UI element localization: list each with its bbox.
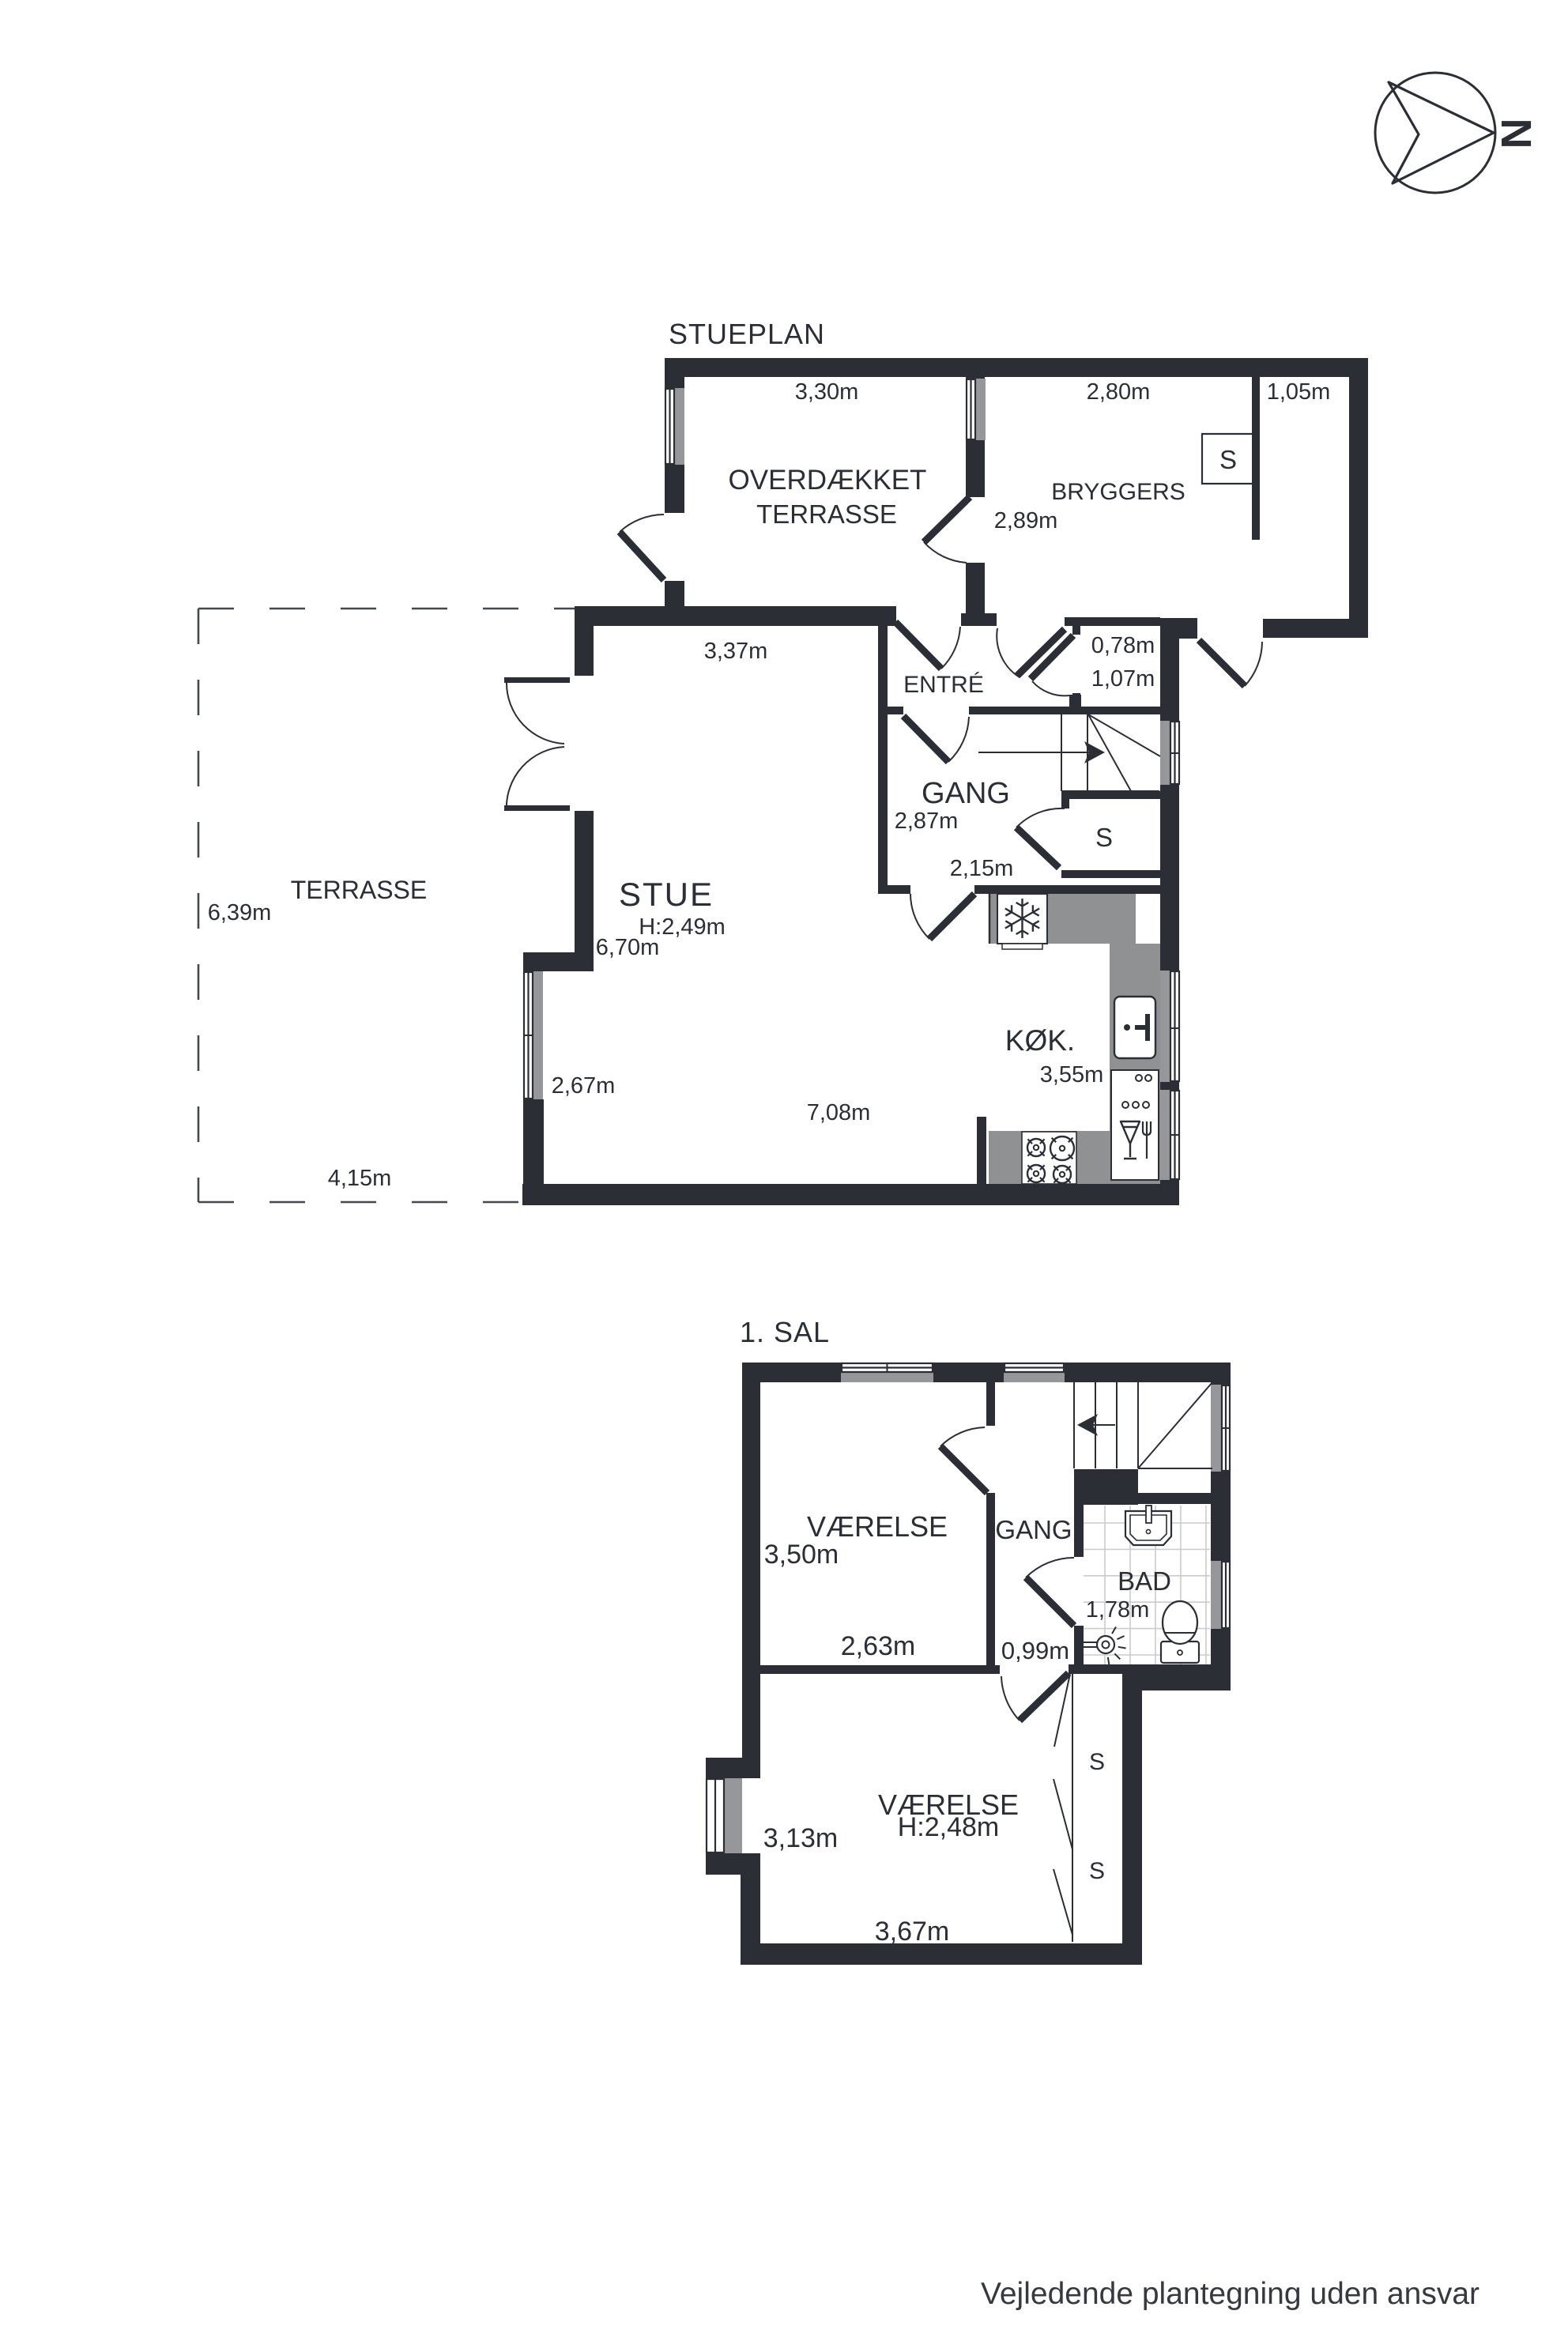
svg-text:GANG: GANG <box>922 777 1010 810</box>
svg-text:2,80m: 2,80m <box>1087 379 1151 405</box>
svg-text:1,78m: 1,78m <box>1086 1597 1150 1623</box>
svg-text:BAD: BAD <box>1118 1566 1171 1596</box>
svg-text:STUEPLAN: STUEPLAN <box>669 318 825 350</box>
svg-text:2,89m: 2,89m <box>994 508 1058 533</box>
svg-text:2,87m: 2,87m <box>895 808 959 834</box>
svg-text:VÆRELSE: VÆRELSE <box>807 1510 948 1543</box>
svg-text:2,15m: 2,15m <box>950 856 1014 881</box>
svg-text:GANG: GANG <box>995 1515 1072 1544</box>
svg-text:4,15m: 4,15m <box>328 1166 392 1191</box>
svg-text:1,05m: 1,05m <box>1267 379 1331 405</box>
svg-text:1. SAL: 1. SAL <box>740 1316 830 1348</box>
svg-text:2,67m: 2,67m <box>552 1073 616 1099</box>
svg-text:Vejledende plantegning uden an: Vejledende plantegning uden ansvar <box>981 2277 1479 2311</box>
svg-text:N: N <box>1492 119 1540 149</box>
svg-text:H:2,48m: H:2,48m <box>898 1812 1000 1842</box>
svg-text:BRYGGERS: BRYGGERS <box>1051 479 1185 505</box>
svg-text:S: S <box>1089 1749 1105 1775</box>
svg-text:S: S <box>1095 823 1113 852</box>
svg-text:3,37m: 3,37m <box>704 639 768 664</box>
svg-text:TERRASSE: TERRASSE <box>291 876 427 904</box>
svg-text:KØK.: KØK. <box>1005 1024 1075 1057</box>
svg-text:2,63m: 2,63m <box>841 1631 916 1661</box>
svg-text:3,55m: 3,55m <box>1040 1062 1104 1087</box>
svg-text:3,13m: 3,13m <box>763 1823 839 1853</box>
svg-text:OVERDÆKKET: OVERDÆKKET <box>729 465 927 496</box>
svg-text:3,67m: 3,67m <box>875 1917 950 1947</box>
svg-text:1,07m: 1,07m <box>1091 666 1155 692</box>
svg-text:7,08m: 7,08m <box>807 1100 871 1125</box>
svg-text:S: S <box>1219 445 1237 474</box>
svg-text:3,50m: 3,50m <box>764 1540 839 1570</box>
svg-text:0,78m: 0,78m <box>1091 633 1155 658</box>
svg-text:6,70m: 6,70m <box>596 935 660 960</box>
svg-text:3,30m: 3,30m <box>795 379 859 405</box>
svg-text:TERRASSE: TERRASSE <box>756 499 897 529</box>
svg-text:6,39m: 6,39m <box>208 900 272 925</box>
svg-text:STUE: STUE <box>619 876 714 913</box>
svg-text:ENTRÉ: ENTRÉ <box>903 672 984 698</box>
svg-text:0,99m: 0,99m <box>1001 1637 1069 1664</box>
svg-text:S: S <box>1089 1858 1105 1884</box>
